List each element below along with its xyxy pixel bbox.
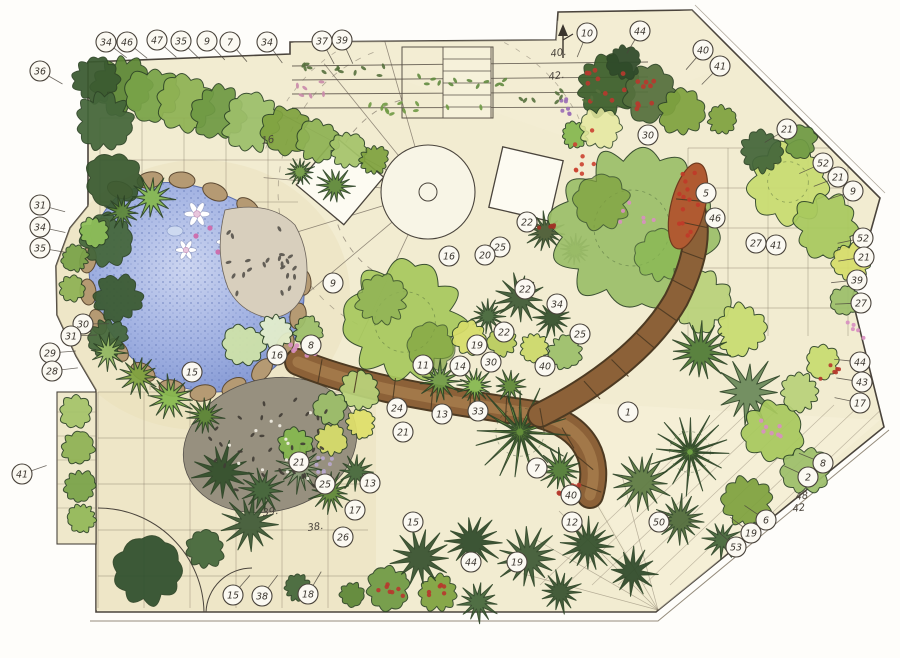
plant-label-number: 35: [34, 243, 46, 254]
plant-label-number: 13: [436, 409, 448, 420]
plant-label-number: 14: [454, 361, 466, 372]
plant-label: 44: [630, 21, 650, 41]
handwritten-annotation: 40.: [550, 47, 567, 60]
plant-label: 53: [726, 537, 746, 557]
plant-label-number: 31: [34, 200, 46, 211]
plant-label-number: 9: [330, 278, 336, 289]
plant-label: 13: [432, 404, 452, 424]
plant-label: 5: [696, 183, 716, 203]
plant-label: 24: [387, 398, 407, 418]
handwritten-annotation: 38.: [307, 521, 324, 534]
plant-label: 10: [577, 23, 597, 43]
plant-label: 21: [777, 119, 797, 139]
plant-label-number: 22: [521, 217, 533, 228]
plant-label: 39: [847, 270, 867, 290]
plant-label-number: 22: [498, 327, 510, 338]
plant-label: 15: [182, 362, 202, 382]
plant-label-number: 47: [151, 35, 163, 46]
plant-label-number: 9: [204, 36, 210, 47]
garden-plan-canvas: 3446473597343739104440413631343530312928…: [0, 0, 900, 658]
plant-label-number: 17: [349, 505, 361, 516]
plant-label-number: 41: [770, 240, 782, 251]
plant-label-number: 29: [44, 348, 56, 359]
plant-label: 9: [843, 181, 863, 201]
plant-label-number: 43: [856, 377, 868, 388]
plant-label: 8: [301, 335, 321, 355]
plant-label: 36: [30, 61, 50, 81]
plant-label: 52: [813, 153, 833, 173]
plant-label: 18: [298, 584, 318, 604]
plant-label: 43: [852, 372, 872, 392]
plant-label-number: 21: [858, 252, 870, 263]
plant-label: 31: [61, 326, 81, 346]
plant-label-number: 22: [519, 284, 531, 295]
plant-label-number: 46: [121, 37, 133, 48]
plant-label-number: 21: [397, 427, 409, 438]
plant-label: 33: [468, 401, 488, 421]
plant-label: 34: [257, 32, 277, 52]
plant-label: 20: [475, 245, 495, 265]
plant-label-number: 36: [34, 66, 46, 77]
plant-label: 21: [828, 167, 848, 187]
plant-label-number: 31: [65, 331, 77, 342]
plant-label: 30: [638, 125, 658, 145]
plant-label-number: 19: [471, 340, 483, 351]
plant-label: 50: [649, 512, 669, 532]
plant-label: 44: [461, 552, 481, 572]
plant-label-number: 24: [391, 403, 403, 414]
plant-label-number: 25: [494, 242, 506, 253]
plant-label: 46: [117, 32, 137, 52]
plant-label: 37: [312, 31, 332, 51]
plant-label: 15: [223, 585, 243, 605]
plant-label-number: 44: [465, 557, 477, 568]
plant-label: 27: [746, 233, 766, 253]
plant-label-number: 21: [293, 457, 305, 468]
plant-label-number: 7: [227, 37, 233, 48]
plant-label: 31: [30, 195, 50, 215]
plant-label-number: 27: [855, 298, 867, 309]
plant-label: 34: [96, 32, 116, 52]
plant-label: 35: [171, 31, 191, 51]
plant-label-number: 5: [703, 188, 709, 199]
plant-label: 8: [813, 453, 833, 473]
plant-label-number: 35: [175, 36, 187, 47]
plant-label: 30: [481, 352, 501, 372]
plant-label-number: 20: [479, 250, 491, 261]
plant-label: 19: [507, 552, 527, 572]
plant-label-number: 8: [820, 458, 826, 469]
plant-label: 44: [850, 352, 870, 372]
plant-label-number: 34: [261, 37, 273, 48]
plant-label-number: 38: [256, 591, 268, 602]
plant-label: 1: [618, 402, 638, 422]
plant-label-number: 27: [750, 238, 762, 249]
plant-label: 16: [267, 345, 287, 365]
plant-label-number: 15: [186, 367, 198, 378]
plant-label-number: 15: [227, 590, 239, 601]
plant-label: 40: [561, 485, 581, 505]
plant-label: 39: [332, 30, 352, 50]
plant-label-number: 11: [417, 360, 429, 371]
plant-label-number: 19: [745, 528, 757, 539]
plant-label: 2: [798, 467, 818, 487]
plant-label-number: 34: [551, 299, 563, 310]
plant-label: 19: [467, 335, 487, 355]
plant-label: 22: [494, 322, 514, 342]
plant-label-number: 15: [407, 517, 419, 528]
plant-label-number: 10: [581, 28, 593, 39]
plant-label: 26: [333, 527, 353, 547]
plant-label-number: 1: [625, 407, 631, 418]
plant-label-number: 44: [854, 357, 866, 368]
plant-label-number: 26: [337, 532, 349, 543]
plant-label: 11: [413, 355, 433, 375]
plant-label: 47: [147, 30, 167, 50]
plant-label-number: 6: [763, 515, 769, 526]
plant-label-number: 2: [805, 472, 811, 483]
garden-plan-drawing: 3446473597343739104440413631343530312928…: [0, 0, 900, 658]
plant-label-number: 34: [100, 37, 112, 48]
plant-label: 14: [450, 356, 470, 376]
plant-label-number: 21: [832, 172, 844, 183]
plant-label-number: 18: [302, 589, 314, 600]
plant-label: 9: [323, 273, 343, 293]
plant-label: 21: [289, 452, 309, 472]
plant-label: 9: [197, 31, 217, 51]
round-table: [381, 145, 475, 239]
plant-label: 34: [547, 294, 567, 314]
plant-label: 12: [562, 512, 582, 532]
plant-label: 38: [252, 586, 272, 606]
plant-label: 41: [710, 56, 730, 76]
plant-label: 19: [741, 523, 761, 543]
plant-label: 7: [220, 32, 240, 52]
plant-label-number: 25: [574, 329, 586, 340]
plant-label: 17: [850, 393, 870, 413]
plant-label: 35: [30, 238, 50, 258]
plant-label-number: 52: [817, 158, 829, 169]
plant-label-number: 30: [642, 130, 654, 141]
plant-label: 41: [12, 464, 32, 484]
plant-label: 34: [30, 217, 50, 237]
plant-label-number: 30: [77, 319, 89, 330]
plant-label-number: 28: [46, 366, 58, 377]
plant-label: 17: [345, 500, 365, 520]
plant-label: 52: [853, 228, 873, 248]
plant-label-number: 40: [539, 361, 551, 372]
plant-label-number: 53: [730, 542, 742, 553]
handwritten-annotation: 48: [795, 490, 809, 503]
plant-label: 7: [527, 458, 547, 478]
plant-label: 25: [315, 474, 335, 494]
handwritten-annotation: 39.: [262, 506, 279, 519]
plant-label: 25: [570, 324, 590, 344]
plant-label-number: 16: [443, 251, 455, 262]
plant-label-number: 34: [34, 222, 46, 233]
plant-label-number: 16: [271, 350, 283, 361]
plant-label-number: 41: [16, 469, 28, 480]
handwritten-annotation: 42: [792, 502, 806, 515]
plant-label: 16: [439, 246, 459, 266]
plant-label-number: 7: [534, 463, 540, 474]
plant-label: 13: [360, 473, 380, 493]
handwritten-annotation: 42.: [548, 70, 565, 83]
plant-label-number: 12: [566, 517, 578, 528]
plant-label: 41: [766, 235, 786, 255]
plant-label-number: 33: [472, 406, 484, 417]
plant-label-number: 8: [308, 340, 314, 351]
plant-label: 28: [42, 361, 62, 381]
plant-label: 22: [515, 279, 535, 299]
plant-label: 46: [705, 208, 725, 228]
handwritten-annotation: 16: [261, 134, 275, 147]
plant-label-number: 21: [781, 124, 793, 135]
plant-label: 21: [854, 247, 874, 267]
plant-label-number: 40: [565, 490, 577, 501]
plant-label-number: 50: [653, 517, 665, 528]
plant-label-number: 41: [714, 61, 726, 72]
plant-label-number: 39: [336, 35, 348, 46]
plant-label: 40: [535, 356, 555, 376]
plant-label-number: 13: [364, 478, 376, 489]
plant-label-number: 44: [634, 26, 646, 37]
plant-label-number: 19: [511, 557, 523, 568]
plant-label: 15: [403, 512, 423, 532]
plant-label-number: 17: [854, 398, 866, 409]
plant-label: 21: [393, 422, 413, 442]
plant-label: 29: [40, 343, 60, 363]
plant-label: 27: [851, 293, 871, 313]
plant-label: 40: [693, 40, 713, 60]
plant-label-number: 39: [851, 275, 863, 286]
plant-label-number: 52: [857, 233, 869, 244]
plant-label-number: 37: [316, 36, 328, 47]
plant-label-number: 9: [850, 186, 856, 197]
plant-label-number: 40: [697, 45, 709, 56]
plant-label-number: 46: [709, 213, 721, 224]
plant-label-number: 30: [485, 357, 497, 368]
plant-label-number: 25: [319, 479, 331, 490]
plant-label: 22: [517, 212, 537, 232]
